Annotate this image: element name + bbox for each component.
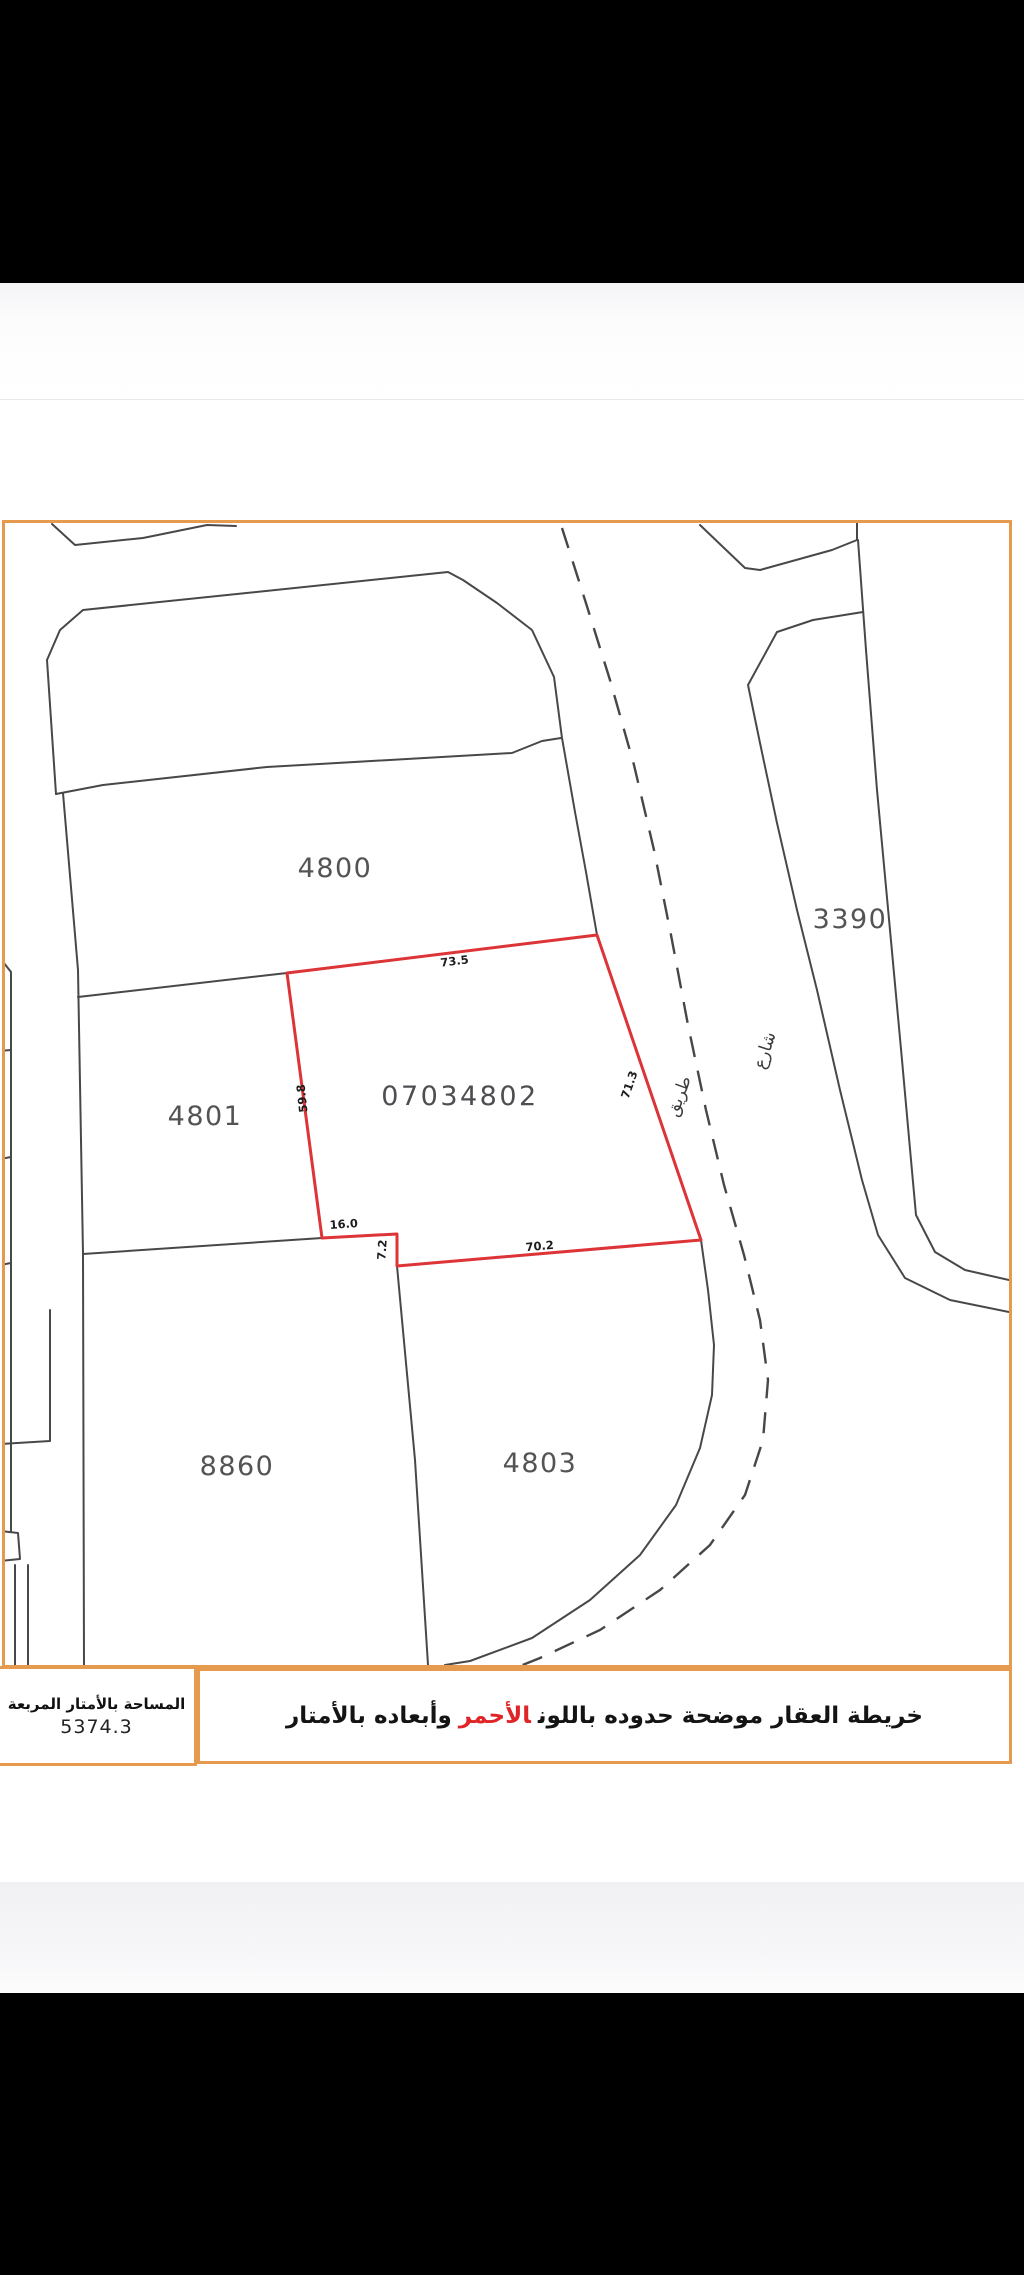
parcel-boundary xyxy=(47,572,497,660)
road-label-sharee: شارع xyxy=(750,1029,781,1071)
area-value: 5374.3 xyxy=(60,1716,132,1738)
road-edge xyxy=(497,603,597,935)
caption-before: خريطة العقار موضحة حدوده باللون xyxy=(538,1703,923,1729)
dim-notch: 16.0 xyxy=(329,1216,358,1232)
parcel-boundary xyxy=(47,660,56,794)
dim-top: 73.5 xyxy=(440,952,470,969)
caption-red-word: الأحمر xyxy=(459,1703,531,1729)
map-canvas: 4800 4801 8860 4803 3390 07034802 73.5 5… xyxy=(5,523,1009,1665)
parcel-boundary xyxy=(63,793,84,1665)
parcel-boundary xyxy=(397,1266,428,1665)
highlight-parcel-label: 07034802 xyxy=(381,1081,538,1112)
parcel-boundary xyxy=(83,1238,322,1254)
parcel-label-4801: 4801 xyxy=(168,1101,243,1132)
header-card xyxy=(0,283,1024,400)
parcel-boundary xyxy=(748,612,1009,1312)
parcel-boundary xyxy=(700,523,857,570)
parcel-label-3390: 3390 xyxy=(813,904,888,935)
area-cell: المساحة بالأمتار المربعة 5374.3 xyxy=(0,1666,197,1766)
dim-bottom: 70.2 xyxy=(525,1238,554,1254)
caption-cell: خريطة العقار موضحة حدوده باللونالأحمروأب… xyxy=(197,1668,1012,1764)
dim-left: 59.8 xyxy=(294,1084,311,1114)
road-label-tariq: طريق xyxy=(663,1073,696,1119)
cadastral-map: 4800 4801 8860 4803 3390 07034802 73.5 5… xyxy=(2,520,1012,1668)
parcel-boundary xyxy=(52,524,236,545)
parcel-boundary xyxy=(5,1050,11,1051)
parcel-boundary xyxy=(78,973,287,997)
area-label: المساحة بالأمتار المربعة xyxy=(8,1695,186,1713)
parcel-boundary xyxy=(5,1531,20,1561)
dim-right: 71.3 xyxy=(618,1069,640,1100)
parcel-boundary xyxy=(56,738,561,794)
letterbox-bottom xyxy=(0,1993,1024,2275)
footer-band xyxy=(0,1882,1024,1993)
caption-after: وأبعاده بالأمتار xyxy=(286,1703,452,1729)
parcel-label-8860: 8860 xyxy=(200,1451,275,1482)
dim-step: 7.2 xyxy=(374,1239,389,1260)
parcel-boundary xyxy=(5,958,11,1531)
map-caption: خريطة العقار موضحة حدوده باللونالأحمروأب… xyxy=(286,1703,923,1729)
parcel-label-4800: 4800 xyxy=(298,853,373,884)
letterbox-top xyxy=(0,0,1024,283)
parcel-label-4803: 4803 xyxy=(503,1448,578,1479)
road-edge xyxy=(445,1240,714,1665)
